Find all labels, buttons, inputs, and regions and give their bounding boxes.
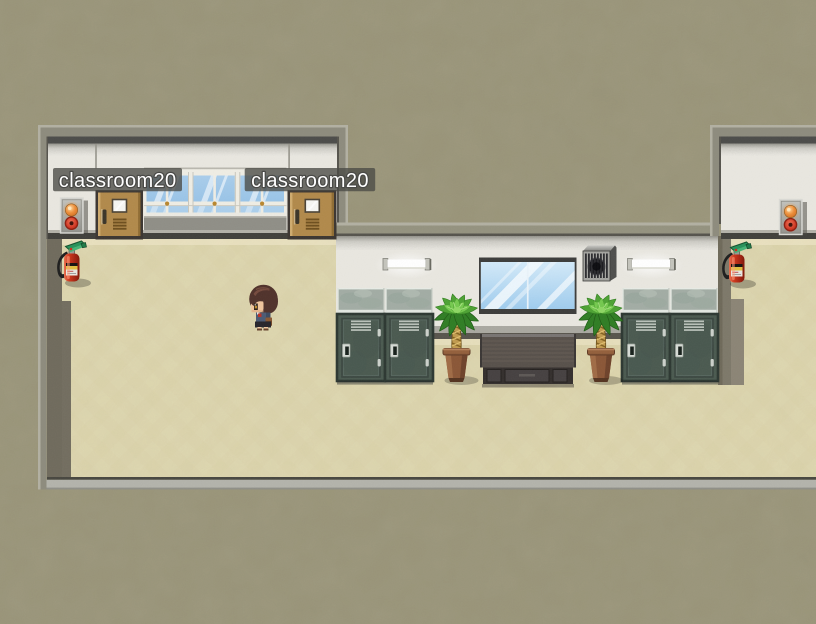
svg-text:classroom20: classroom20 [251, 170, 369, 192]
svg-text:classroom20: classroom20 [59, 170, 177, 192]
